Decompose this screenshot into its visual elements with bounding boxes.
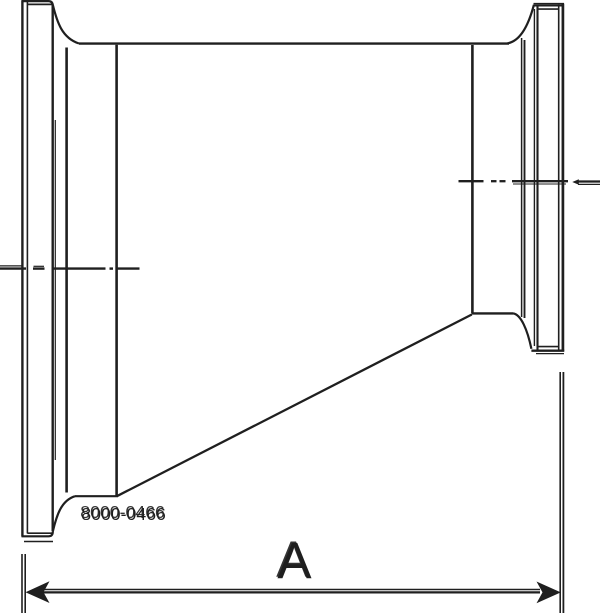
svg-text:8000-0466: 8000-0466	[80, 502, 165, 522]
svg-text:A: A	[276, 531, 311, 588]
